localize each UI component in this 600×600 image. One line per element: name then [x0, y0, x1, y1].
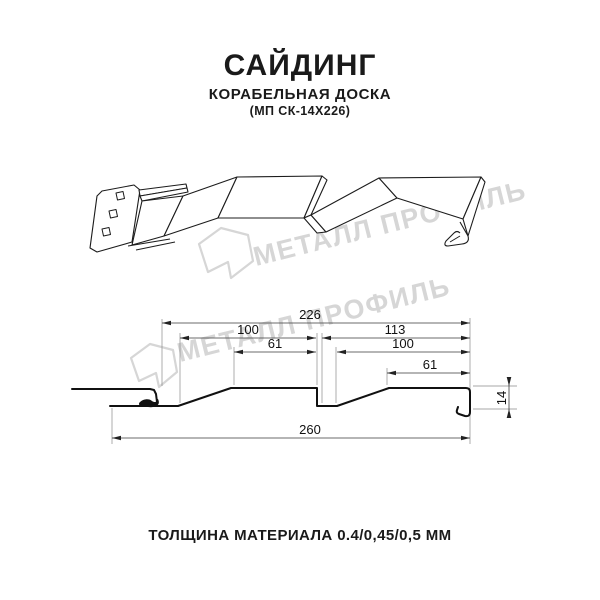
product-card: САЙДИНГ КОРАБЕЛЬНАЯ ДОСКА (МП СК-14Х226)…: [0, 0, 600, 600]
dim-label-260: 260: [299, 422, 321, 437]
panel-outline: [110, 388, 470, 416]
technical-drawing: МЕТАЛЛ ПРОФИЛЬ МЕТАЛЛ ПРОФИЛЬ: [0, 0, 600, 600]
watermark-logo-icon: [199, 228, 253, 278]
dim-label-113: 113: [385, 322, 406, 337]
dim-label-100-right: 100: [392, 336, 414, 351]
thickness-note: ТОЛЩИНА МАТЕРИАЛА 0.4/0,45/0,5 ММ: [0, 527, 600, 544]
dim-label-100-left: 100: [237, 322, 259, 337]
dim-label-14: 14: [494, 391, 509, 405]
dim-label-226: 226: [299, 307, 321, 322]
dim-label-61-right: 61: [423, 357, 437, 372]
watermark-logo-icon: [131, 344, 177, 387]
dim-label-61-left: 61: [268, 336, 282, 351]
